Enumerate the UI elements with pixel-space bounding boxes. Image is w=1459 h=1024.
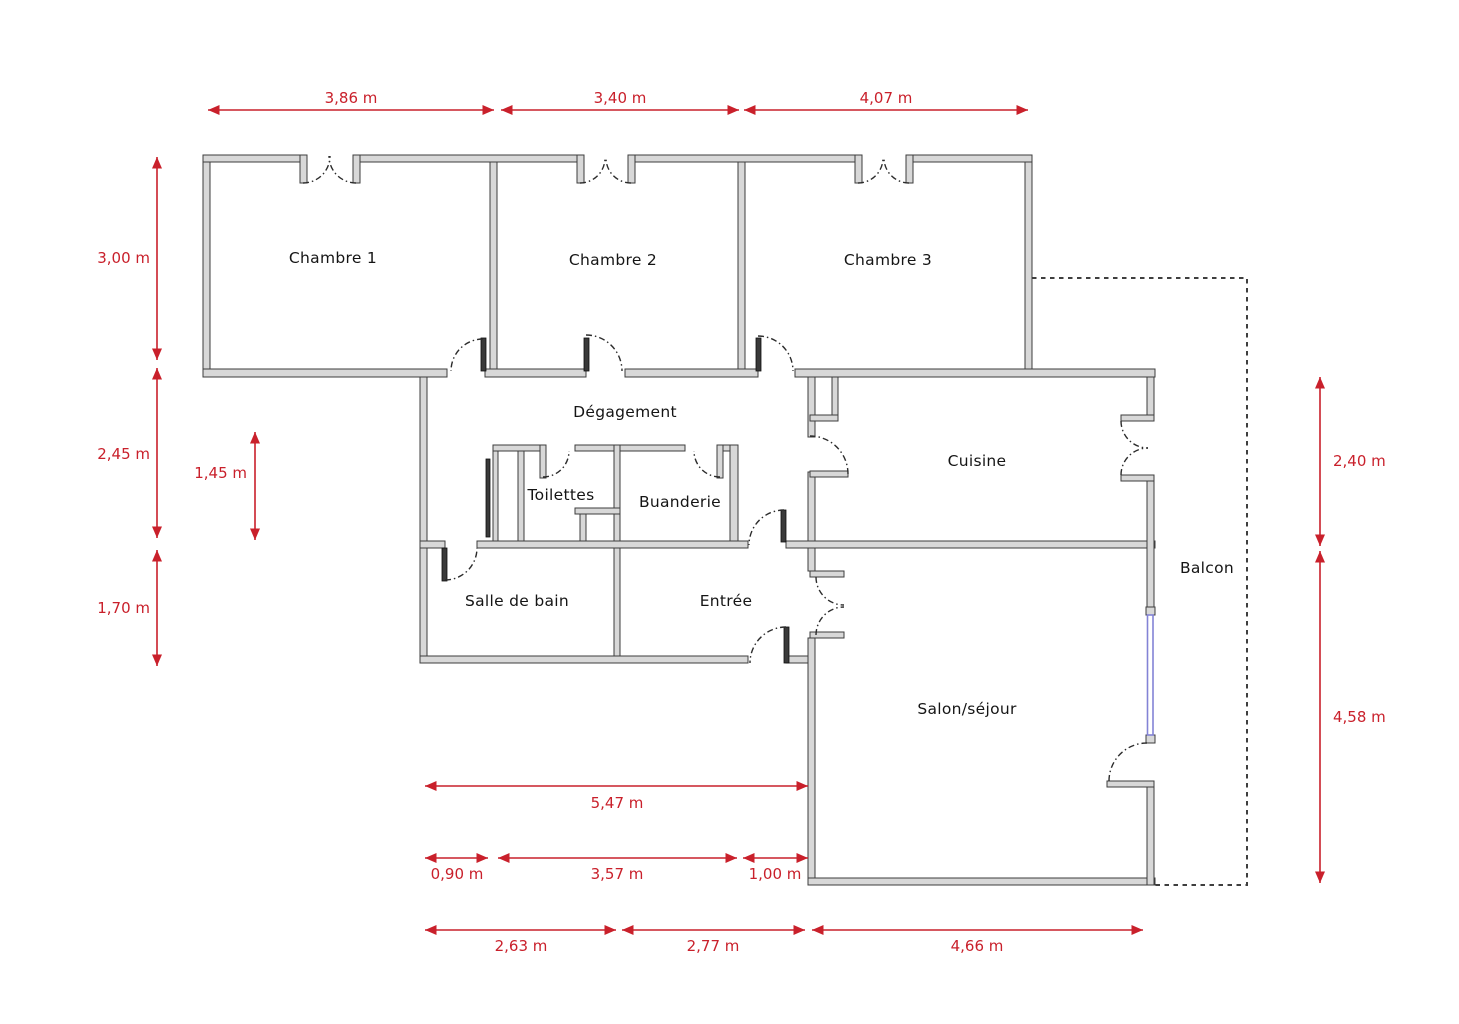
door-leaf	[784, 627, 789, 663]
wall-segment	[730, 445, 738, 541]
wall-segment	[1147, 377, 1154, 415]
wall-segment	[808, 548, 815, 571]
room-label-entree: Entrée	[700, 592, 753, 610]
wall-segment	[635, 155, 855, 162]
wall-segment	[518, 451, 524, 541]
floor-plan-canvas: 3,86 m3,40 m4,07 m3,00 m2,45 m1,70 m1,45…	[0, 0, 1459, 1024]
door-leaf	[481, 338, 486, 371]
door-swing-arc	[543, 451, 569, 477]
dimension-label: 3,40 m	[594, 89, 647, 107]
wall-segment	[614, 548, 620, 656]
door-swing-arc	[1109, 743, 1147, 781]
door-leaf	[442, 548, 447, 581]
dimension-label: 4,66 m	[951, 937, 1004, 955]
door-swing-arc	[451, 339, 483, 371]
wall-segment	[808, 377, 815, 437]
door-leaf	[486, 459, 490, 537]
wall-segment	[808, 638, 815, 878]
room-label-balcon: Balcon	[1180, 559, 1234, 577]
wall-segment	[420, 377, 427, 663]
wall-segment	[493, 445, 540, 451]
dimension-label: 4,07 m	[860, 89, 913, 107]
door-swing-arc	[749, 510, 784, 545]
door-leaf	[781, 510, 786, 542]
door-swing-arc	[816, 607, 844, 635]
wall-segment	[1025, 162, 1032, 377]
wall-segment	[808, 472, 815, 541]
wall-segment	[577, 155, 584, 183]
wall-segment	[1147, 787, 1154, 885]
wall-segment	[1146, 607, 1155, 615]
wall-segment	[1147, 481, 1154, 607]
room-label-toilettes: Toilettes	[527, 486, 595, 504]
wall-segment	[477, 541, 748, 548]
wall-segment	[625, 369, 758, 377]
wall-segment	[832, 377, 838, 421]
wall-segment	[810, 571, 844, 577]
door-swing-arc	[884, 158, 909, 183]
dimension-label: 1,70 m	[97, 599, 150, 617]
wall-segment	[795, 369, 1155, 377]
dimension-label: 0,90 m	[431, 865, 484, 883]
wall-segment	[580, 514, 586, 541]
wall-segment	[420, 656, 748, 663]
wall-segment	[300, 155, 307, 183]
room-label-buanderie: Buanderie	[639, 493, 721, 511]
salon-window-icon	[1148, 615, 1154, 735]
dimension-label: 1,00 m	[749, 865, 802, 883]
dimension-label: 1,45 m	[194, 464, 247, 482]
wall-segment	[490, 162, 497, 369]
dimension-label: 2,77 m	[687, 937, 740, 955]
room-label-salon: Salon/séjour	[917, 700, 1017, 718]
wall-segment	[913, 155, 1032, 162]
room-label-cuisine: Cuisine	[948, 452, 1007, 470]
wall-segment	[203, 155, 307, 162]
room-labels-layer: Chambre 1 Chambre 2 Chambre 3 Dégagement…	[289, 249, 1234, 718]
wall-segment	[906, 155, 913, 183]
wall-segment	[353, 155, 360, 183]
wall-segment	[786, 541, 1155, 548]
door-swing-arc	[816, 577, 844, 605]
dimension-label: 2,45 m	[97, 445, 150, 463]
wall-segment	[738, 162, 745, 369]
dimension-label: 2,40 m	[1333, 452, 1386, 470]
dimension-label: 5,47 m	[591, 794, 644, 812]
wall-segment	[1107, 781, 1154, 787]
wall-segment	[353, 155, 577, 162]
room-label-salle-de-bain: Salle de bain	[465, 592, 569, 610]
dimension-label: 4,58 m	[1333, 708, 1386, 726]
wall-segment	[575, 508, 620, 514]
door-swing-arc	[586, 335, 622, 371]
dimension-label: 3,57 m	[591, 865, 644, 883]
door-swing-arc	[694, 451, 720, 477]
wall-segment	[203, 369, 447, 377]
wall-segment	[628, 155, 635, 183]
door-swing-arc	[758, 336, 793, 371]
floor-plan-page: 3,86 m3,40 m4,07 m3,00 m2,45 m1,70 m1,45…	[0, 0, 1459, 1024]
dimension-label: 3,00 m	[97, 249, 150, 267]
wall-segment	[575, 445, 685, 451]
wall-segment	[855, 155, 862, 183]
door-swing-arc	[606, 158, 631, 183]
door-leaf	[584, 338, 589, 371]
door-swings-layer	[303, 156, 1148, 781]
wall-segment	[614, 445, 620, 541]
wall-segment	[540, 445, 546, 478]
door-leaf	[756, 338, 761, 371]
wall-segment	[420, 541, 445, 548]
door-swing-arc	[1121, 448, 1148, 475]
room-label-chambre3: Chambre 3	[844, 251, 932, 269]
door-swing-arc	[329, 156, 356, 183]
dimension-label: 2,63 m	[495, 937, 548, 955]
wall-segment	[808, 878, 1155, 885]
room-label-degagement: Dégagement	[573, 403, 677, 421]
wall-segment	[810, 415, 838, 421]
wall-segment	[485, 369, 586, 377]
wall-segment	[1121, 415, 1154, 421]
wall-segment	[810, 632, 844, 638]
door-swing-arc	[1121, 421, 1148, 448]
wall-segment	[810, 471, 848, 477]
room-label-chambre1: Chambre 1	[289, 249, 377, 267]
wall-segment	[1146, 735, 1155, 743]
door-swing-arc	[810, 436, 848, 474]
wall-segment	[1121, 475, 1154, 481]
room-label-chambre2: Chambre 2	[569, 251, 657, 269]
wall-segment	[717, 445, 723, 478]
dimension-label: 3,86 m	[325, 89, 378, 107]
wall-segment	[203, 162, 210, 377]
door-swing-arc	[445, 548, 477, 580]
door-swing-arc	[750, 627, 786, 663]
wall-segment	[493, 451, 498, 541]
